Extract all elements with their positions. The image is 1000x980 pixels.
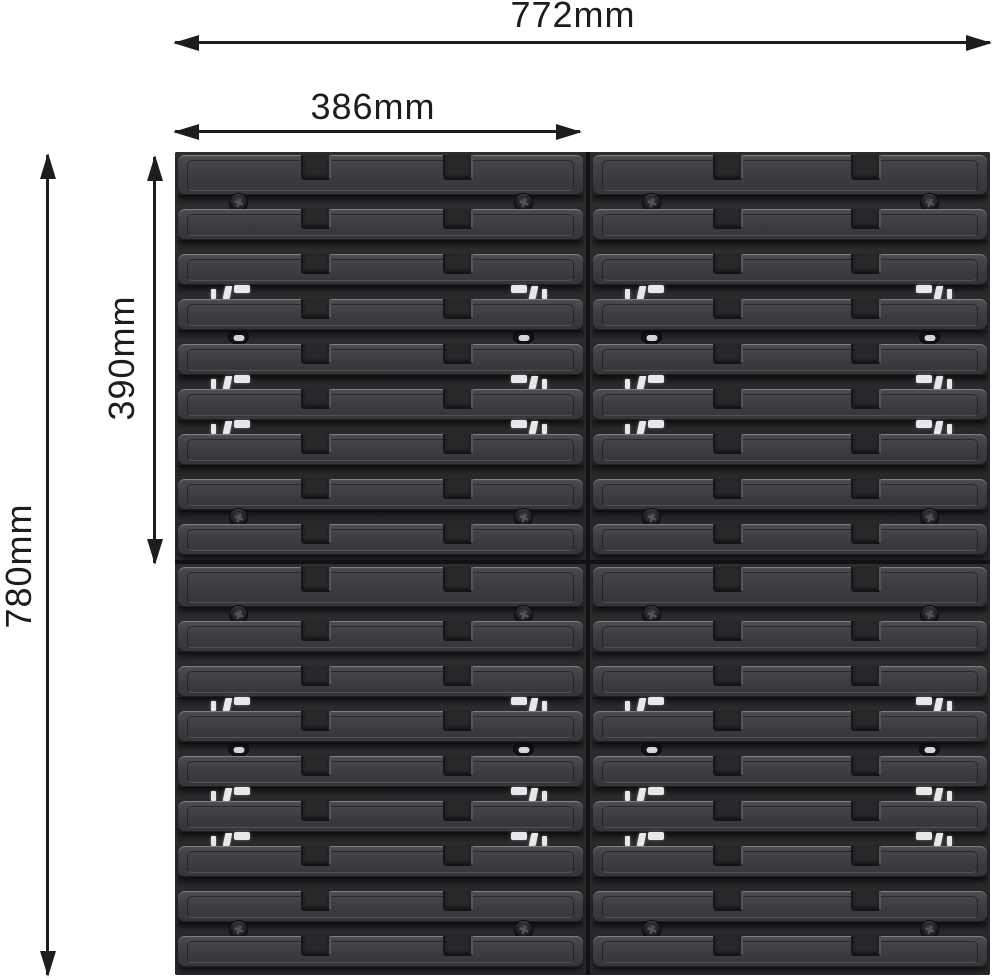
clip-highlight	[542, 836, 547, 846]
slat-inner-line	[187, 761, 574, 783]
slat-notch	[443, 891, 473, 911]
slot-hole-icon	[641, 743, 662, 756]
slot-hole-icon	[513, 743, 534, 756]
slat-inner-line	[187, 160, 574, 191]
panel-groove	[177, 240, 584, 254]
slat	[178, 389, 583, 420]
clip-highlight	[648, 420, 664, 428]
clip-highlight	[648, 787, 664, 795]
slat	[593, 299, 987, 330]
slat-notch	[301, 801, 331, 821]
slat-inner-line	[187, 529, 574, 551]
slat-notch	[851, 389, 881, 409]
slat-notch	[713, 524, 743, 544]
slat-notch	[443, 567, 473, 592]
slat-notch	[443, 209, 473, 229]
slot-hole-icon	[228, 743, 249, 756]
slot-hole-icon	[919, 743, 940, 756]
slat-notch	[301, 209, 331, 229]
clip-highlight	[625, 836, 630, 846]
clip-highlight	[542, 424, 547, 434]
slat	[593, 801, 987, 832]
slat-notch	[301, 621, 331, 641]
slat-notch	[713, 666, 743, 686]
slat-notch	[851, 434, 881, 454]
slat-inner-line	[602, 806, 978, 828]
dimension-line-half-height	[153, 157, 156, 563]
slat-notch	[443, 621, 473, 641]
slat-inner-line	[187, 484, 574, 506]
slat-notch	[851, 666, 881, 686]
slat	[593, 155, 987, 195]
slat-inner-line	[602, 160, 978, 191]
slat	[178, 254, 583, 285]
clip-highlight	[211, 836, 216, 846]
slat-notch	[713, 254, 743, 274]
clip-highlight	[234, 787, 250, 795]
slat	[178, 846, 583, 877]
clip-highlight	[625, 701, 630, 711]
slat	[593, 621, 987, 652]
clip-highlight	[625, 289, 630, 299]
clip-highlight	[542, 379, 547, 389]
slot-hole-icon	[919, 331, 940, 344]
arrow-down-icon	[40, 951, 56, 977]
slat-notch	[713, 155, 743, 180]
slat-notch	[443, 846, 473, 866]
clip-highlight	[625, 379, 630, 389]
clip-highlight	[234, 285, 250, 293]
arrow-up-icon	[40, 153, 56, 179]
slat-inner-line	[187, 941, 574, 963]
slat-notch	[851, 299, 881, 319]
slat-notch	[713, 479, 743, 499]
slat	[178, 479, 583, 510]
slat-notch	[443, 344, 473, 364]
clip-highlight	[511, 697, 527, 705]
slat-notch	[301, 344, 331, 364]
slat-inner-line	[187, 806, 574, 828]
slat-inner-line	[602, 572, 978, 603]
slat	[178, 756, 583, 787]
slat-inner-line	[602, 394, 978, 416]
panel-groove	[177, 877, 584, 891]
dimension-label-half-height: 390mm	[101, 295, 143, 420]
arrow-right-icon	[556, 124, 582, 140]
product-dimension-figure: 772mm 386mm 780mm 390mm	[0, 0, 1000, 980]
slat-notch	[301, 711, 331, 731]
slat-inner-line	[187, 896, 574, 918]
dimension-label-total-height: 780mm	[0, 503, 40, 628]
panel-groove	[177, 465, 584, 479]
slat-inner-line	[187, 716, 574, 738]
slat	[178, 666, 583, 697]
wall-panel-2	[590, 152, 990, 560]
slat-notch	[443, 155, 473, 180]
clip-highlight	[511, 285, 527, 293]
slat-notch	[851, 479, 881, 499]
slat-inner-line	[602, 761, 978, 783]
slat	[178, 936, 583, 967]
clip-highlight	[648, 697, 664, 705]
slat-inner-line	[187, 572, 574, 603]
slat-notch	[713, 711, 743, 731]
slot-shine	[518, 747, 529, 753]
slat-inner-line	[602, 439, 978, 461]
slat-inner-line	[187, 304, 574, 326]
arrow-down-icon	[147, 539, 163, 565]
clip-highlight	[234, 420, 250, 428]
clip-highlight	[916, 832, 932, 840]
slat-inner-line	[602, 941, 978, 963]
slat-notch	[713, 389, 743, 409]
slat-notch	[851, 846, 881, 866]
slat-inner-line	[602, 214, 978, 236]
slat	[593, 434, 987, 465]
slat-notch	[851, 756, 881, 776]
slat-notch	[713, 621, 743, 641]
slat-notch	[301, 666, 331, 686]
slat-notch	[443, 524, 473, 544]
slat-notch	[851, 711, 881, 731]
slat-inner-line	[602, 484, 978, 506]
slat	[593, 344, 987, 375]
slat-inner-line	[187, 214, 574, 236]
slot-hole-icon	[641, 331, 662, 344]
clip-highlight	[947, 379, 952, 389]
slat-notch	[301, 567, 331, 592]
slat-inner-line	[187, 394, 574, 416]
slat-notch	[301, 936, 331, 956]
clip-highlight	[916, 420, 932, 428]
clip-highlight	[916, 285, 932, 293]
clip-highlight	[211, 289, 216, 299]
slat	[178, 621, 583, 652]
panel-groove	[592, 877, 988, 891]
slat-inner-line	[602, 716, 978, 738]
clip-highlight	[947, 701, 952, 711]
slat-notch	[443, 389, 473, 409]
slat-inner-line	[602, 896, 978, 918]
slat-notch	[301, 389, 331, 409]
dimension-line-total-width	[175, 41, 990, 44]
slot-hole-icon	[513, 331, 534, 344]
slat	[178, 344, 583, 375]
panel-groove	[592, 652, 988, 666]
clip-highlight	[542, 701, 547, 711]
slat	[178, 567, 583, 607]
slat-notch	[443, 711, 473, 731]
slat	[593, 846, 987, 877]
clip-highlight	[947, 289, 952, 299]
clip-highlight	[947, 836, 952, 846]
clip-highlight	[648, 375, 664, 383]
slat-notch	[301, 299, 331, 319]
slat	[593, 666, 987, 697]
slat	[593, 936, 987, 967]
slat	[593, 567, 987, 607]
arrow-left-icon	[173, 124, 199, 140]
slat-notch	[851, 891, 881, 911]
clip-highlight	[542, 289, 547, 299]
slat-notch	[301, 524, 331, 544]
slat-notch	[713, 344, 743, 364]
clip-highlight	[211, 701, 216, 711]
slat-notch	[443, 756, 473, 776]
slat-notch	[713, 801, 743, 821]
slot-shine	[924, 747, 935, 753]
slat-inner-line	[187, 626, 574, 648]
slat-notch	[443, 479, 473, 499]
panel-groove	[177, 652, 584, 666]
clip-highlight	[234, 697, 250, 705]
slat-inner-line	[602, 529, 978, 551]
slat-inner-line	[602, 304, 978, 326]
slat	[593, 389, 987, 420]
clip-highlight	[625, 424, 630, 434]
slot-shine	[646, 335, 657, 341]
slat	[178, 801, 583, 832]
clip-highlight	[648, 832, 664, 840]
clip-highlight	[947, 424, 952, 434]
dimension-line-total-height	[46, 155, 49, 975]
dimension-label-total-width: 772mm	[510, 0, 635, 36]
slat-notch	[851, 567, 881, 592]
slat-notch	[851, 254, 881, 274]
slat	[178, 155, 583, 195]
slat	[178, 524, 583, 555]
slat-notch	[443, 801, 473, 821]
slat	[593, 209, 987, 240]
slat-inner-line	[187, 851, 574, 873]
slat-inner-line	[602, 259, 978, 281]
panel-groove	[592, 465, 988, 479]
slat-notch	[851, 621, 881, 641]
clip-highlight	[542, 791, 547, 801]
slat-notch	[713, 567, 743, 592]
slat-notch	[713, 891, 743, 911]
slat-notch	[443, 936, 473, 956]
clip-highlight	[511, 420, 527, 428]
slat	[178, 209, 583, 240]
slat	[593, 479, 987, 510]
slat-notch	[713, 209, 743, 229]
slat	[178, 299, 583, 330]
slat	[593, 711, 987, 742]
slat-notch	[301, 254, 331, 274]
slat-notch	[713, 936, 743, 956]
slat-notch	[301, 756, 331, 776]
dimension-line-half-width	[175, 130, 580, 133]
slat-inner-line	[187, 439, 574, 461]
slat-notch	[443, 434, 473, 454]
slat	[593, 524, 987, 555]
clip-highlight	[916, 697, 932, 705]
slat	[178, 711, 583, 742]
slat-notch	[301, 846, 331, 866]
clip-highlight	[916, 375, 932, 383]
clip-highlight	[511, 787, 527, 795]
arrow-up-icon	[147, 155, 163, 181]
clip-highlight	[234, 375, 250, 383]
panel-wall	[175, 152, 990, 975]
slat-notch	[301, 479, 331, 499]
slat-notch	[443, 254, 473, 274]
slat-notch	[851, 936, 881, 956]
clip-highlight	[625, 791, 630, 801]
slat-notch	[851, 524, 881, 544]
clip-highlight	[234, 832, 250, 840]
clip-highlight	[211, 424, 216, 434]
slat-inner-line	[187, 671, 574, 693]
slot-shine	[518, 335, 529, 341]
slot-shine	[233, 335, 244, 341]
slat-inner-line	[602, 349, 978, 371]
slat-inner-line	[187, 349, 574, 371]
wall-panel-4	[590, 564, 990, 975]
slot-shine	[646, 747, 657, 753]
slat-notch	[713, 299, 743, 319]
panel-groove	[592, 240, 988, 254]
slat-inner-line	[602, 851, 978, 873]
slat	[593, 756, 987, 787]
slat	[178, 891, 583, 922]
clip-highlight	[511, 375, 527, 383]
slat	[593, 891, 987, 922]
slat-inner-line	[187, 259, 574, 281]
slat-notch	[713, 756, 743, 776]
wall-panel-1	[175, 152, 586, 560]
slat-notch	[851, 344, 881, 364]
slat	[178, 434, 583, 465]
slot-shine	[233, 747, 244, 753]
slat-notch	[443, 299, 473, 319]
slat-notch	[713, 434, 743, 454]
slat-notch	[851, 155, 881, 180]
clip-highlight	[211, 791, 216, 801]
dimension-label-half-width: 386mm	[310, 86, 435, 128]
slat-notch	[301, 155, 331, 180]
slat-notch	[301, 434, 331, 454]
slat-notch	[851, 801, 881, 821]
slat-notch	[851, 209, 881, 229]
clip-highlight	[916, 787, 932, 795]
slat	[593, 254, 987, 285]
slat-inner-line	[602, 626, 978, 648]
clip-highlight	[211, 379, 216, 389]
slat-notch	[713, 846, 743, 866]
slot-hole-icon	[228, 331, 249, 344]
clip-highlight	[511, 832, 527, 840]
wall-panel-3	[175, 564, 586, 975]
arrow-left-icon	[173, 35, 199, 51]
slat-notch	[443, 666, 473, 686]
slat-notch	[301, 891, 331, 911]
clip-highlight	[947, 791, 952, 801]
clip-highlight	[648, 285, 664, 293]
arrow-right-icon	[966, 35, 992, 51]
slat-inner-line	[602, 671, 978, 693]
slot-shine	[924, 335, 935, 341]
